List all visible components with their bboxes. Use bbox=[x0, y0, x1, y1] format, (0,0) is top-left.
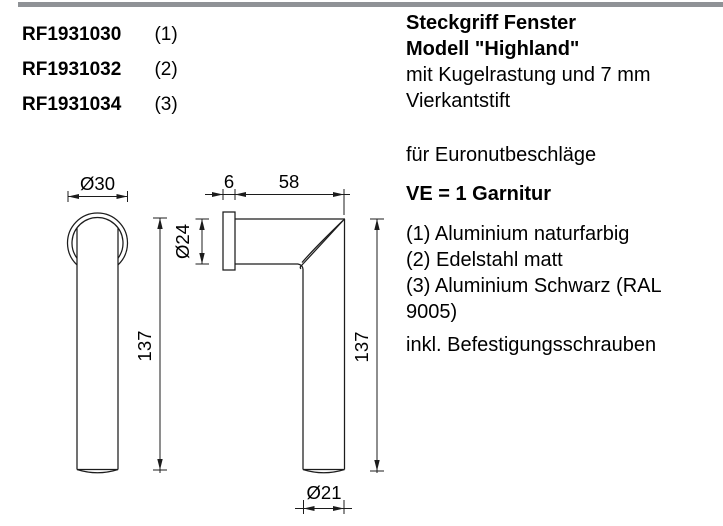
variant-item: (2) Edelstahl matt bbox=[406, 247, 706, 273]
dim-label-rosette-thickness: 6 bbox=[224, 171, 234, 192]
product-variant-number: (1) bbox=[154, 24, 177, 45]
dim-label-front-diameter: Ø30 bbox=[80, 173, 115, 194]
application-note: für Euronutbeschläge bbox=[406, 142, 706, 168]
product-code: RF1931032 bbox=[22, 59, 150, 81]
variant-list: (1) Aluminium naturfarbig (2) Edelstahl … bbox=[406, 221, 706, 325]
product-code: RF1931034 bbox=[22, 94, 150, 116]
side-view bbox=[223, 212, 345, 473]
dim-label-front-height: 137 bbox=[134, 331, 155, 362]
product-title-line1: Steckgriff Fenster bbox=[406, 10, 706, 36]
front-view bbox=[68, 213, 128, 473]
dimension-rosette-thickness-and-neck-length: 6 58 bbox=[205, 171, 350, 215]
product-subtitle-line2: Vierkantstift bbox=[406, 88, 706, 114]
dimension-rosette-diameter: Ø24 bbox=[172, 219, 209, 264]
dimension-side-height: 137 bbox=[351, 219, 384, 473]
product-code-row: RF1931034 (3) bbox=[22, 94, 178, 116]
product-code: RF1931030 bbox=[22, 24, 150, 46]
product-variant-number: (3) bbox=[154, 94, 177, 115]
product-title-line2: Modell "Highland" bbox=[406, 36, 706, 62]
product-title-block: Steckgriff Fenster Modell "Highland" mit… bbox=[406, 10, 706, 114]
variant-item: (3) Aluminium Schwarz (RAL 9005) bbox=[406, 273, 706, 325]
screws-note: inkl. Befestigungsschrauben bbox=[406, 332, 706, 358]
dimension-grip-diameter: Ø21 bbox=[295, 482, 352, 514]
packaging-unit: VE = 1 Garnitur bbox=[406, 181, 706, 207]
dim-label-grip-diameter: Ø21 bbox=[307, 482, 342, 503]
product-subtitle-line1: mit Kugelrastung und 7 mm bbox=[406, 62, 706, 88]
dim-label-rosette-diameter: Ø24 bbox=[172, 224, 193, 259]
top-divider-bar bbox=[18, 2, 723, 7]
product-code-row: RF1931030 (1) bbox=[22, 24, 178, 46]
dim-label-side-height: 137 bbox=[351, 332, 372, 363]
product-variant-number: (2) bbox=[154, 59, 177, 80]
technical-drawing: Ø30 137 6 58 bbox=[0, 150, 400, 526]
dim-label-neck-length: 58 bbox=[279, 171, 300, 192]
dimension-front-height: 137 bbox=[134, 218, 167, 473]
variant-item: (1) Aluminium naturfarbig bbox=[406, 221, 706, 247]
product-code-row: RF1931032 (2) bbox=[22, 59, 178, 81]
dimension-front-diameter: Ø30 bbox=[68, 173, 128, 202]
